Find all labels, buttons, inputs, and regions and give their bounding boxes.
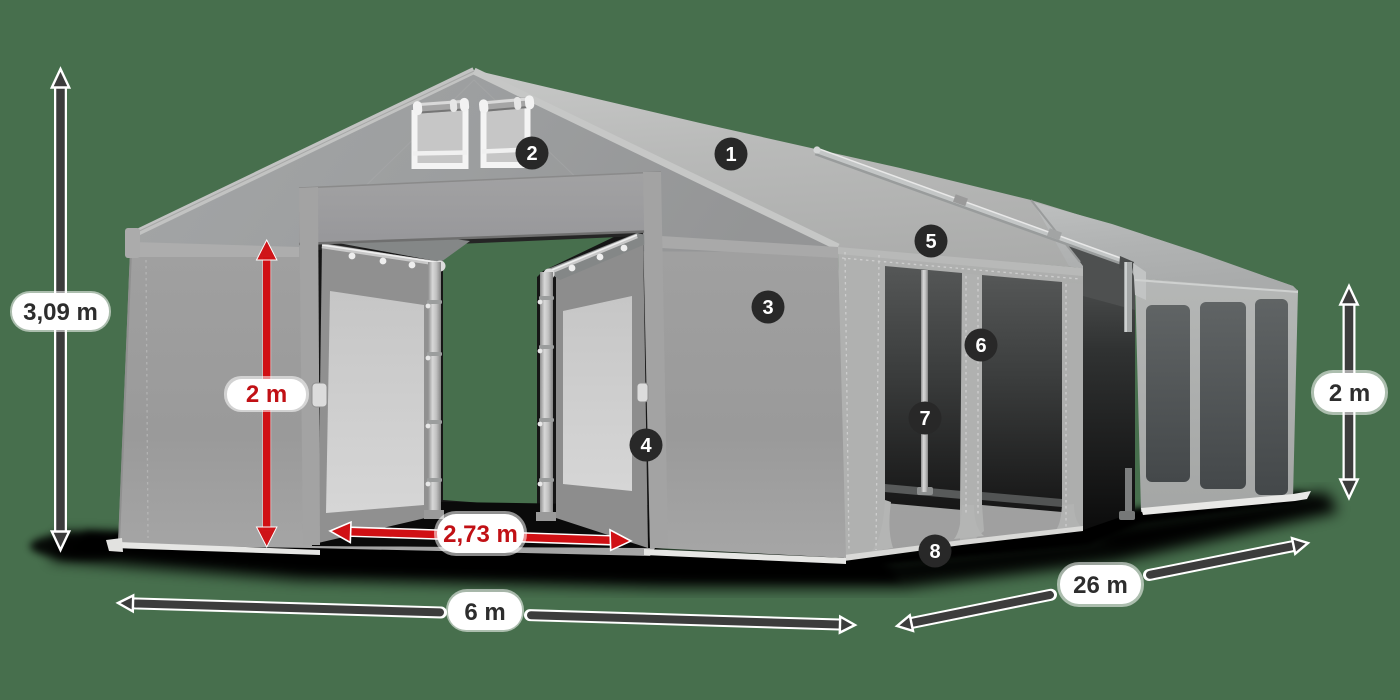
svg-text:26 m: 26 m: [1073, 572, 1128, 599]
svg-text:7: 7: [919, 408, 930, 430]
svg-text:5: 5: [925, 231, 936, 253]
svg-text:8: 8: [929, 541, 940, 563]
svg-text:6: 6: [975, 335, 986, 357]
svg-text:2,73 m: 2,73 m: [443, 521, 518, 548]
svg-text:4: 4: [640, 435, 652, 457]
svg-text:1: 1: [725, 144, 736, 166]
svg-text:3: 3: [762, 297, 773, 319]
svg-text:6 m: 6 m: [464, 599, 505, 626]
svg-text:2 m: 2 m: [246, 381, 287, 408]
svg-text:2: 2: [526, 143, 537, 165]
svg-text:2 m: 2 m: [1329, 380, 1370, 407]
svg-text:3,09 m: 3,09 m: [23, 299, 98, 326]
